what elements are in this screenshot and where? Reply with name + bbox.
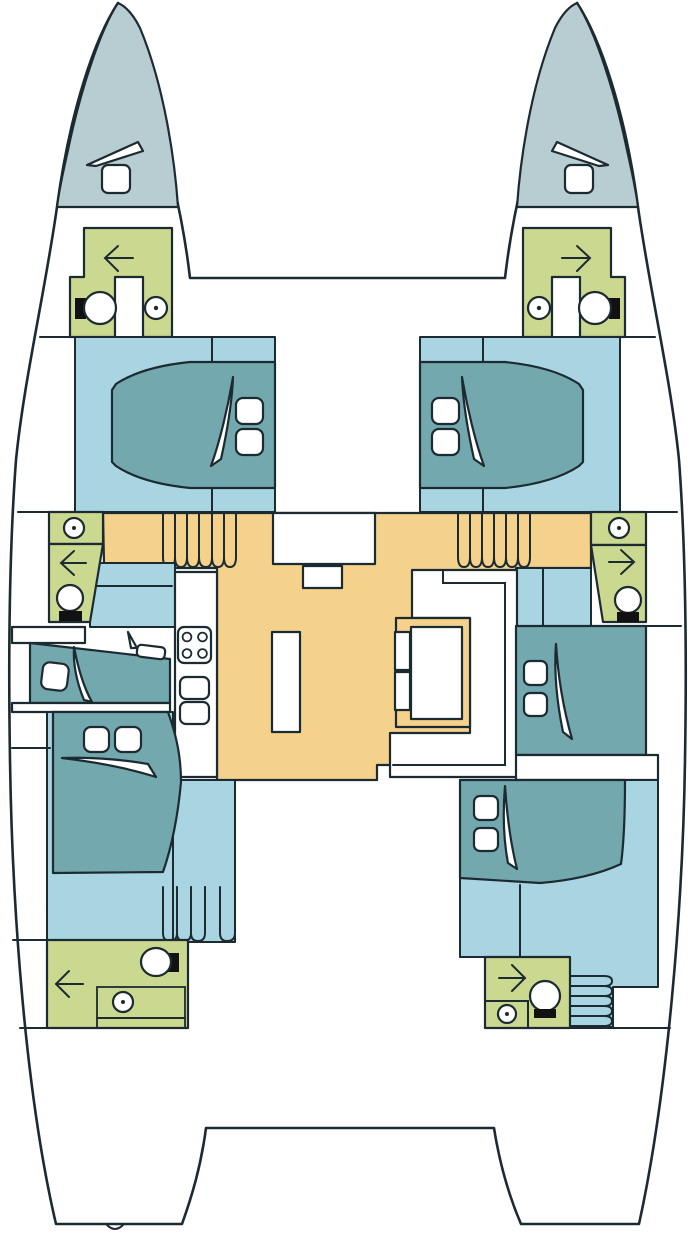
pillow-icon bbox=[236, 398, 263, 424]
dinette-table bbox=[411, 627, 462, 719]
pillow-icon bbox=[40, 662, 69, 692]
catamaran-floor-plan bbox=[0, 0, 695, 1239]
companionway-step bbox=[303, 566, 342, 588]
starboard-forward-sink-drain bbox=[537, 306, 541, 310]
pillow-icon bbox=[524, 661, 547, 685]
companionway-entry bbox=[273, 513, 375, 564]
port-bow-locker bbox=[57, 3, 178, 207]
dinette-seat-icon bbox=[395, 672, 410, 710]
shelf-icon bbox=[136, 644, 165, 659]
pillow-icon bbox=[524, 693, 547, 716]
port-aft-head bbox=[47, 940, 188, 1028]
pillow-icon bbox=[474, 796, 498, 820]
port-mid-bulkhead-band bbox=[12, 627, 85, 643]
port-forward-cabin bbox=[75, 337, 275, 512]
starboard-aft-bulkhead-band bbox=[516, 755, 658, 780]
starboard-bow-locker bbox=[517, 3, 638, 207]
galley-sink-icon bbox=[180, 702, 209, 724]
port-aft-sink-drain bbox=[121, 1000, 125, 1004]
pillow-icon bbox=[84, 727, 109, 752]
port-entry-floor bbox=[90, 563, 175, 627]
starboard-aft-shower-base bbox=[534, 1009, 556, 1018]
port-bow-hatch-icon bbox=[102, 165, 130, 193]
starboard-shower-icon bbox=[615, 587, 641, 613]
galley-sink-icon bbox=[180, 677, 209, 699]
starboard-shower-base bbox=[617, 612, 639, 622]
starboard-forward-toilet-icon bbox=[579, 292, 611, 324]
salon-table bbox=[272, 632, 300, 732]
starboard-aft-sink-drain bbox=[505, 1012, 509, 1016]
dinette-seat-icon bbox=[395, 632, 410, 670]
galley-counter bbox=[175, 572, 217, 777]
pillow-icon bbox=[115, 727, 141, 752]
stern-tick bbox=[107, 1225, 123, 1229]
stove-icon bbox=[178, 627, 211, 663]
starboard-entry-floor bbox=[516, 568, 591, 626]
pillow-icon bbox=[474, 828, 498, 851]
starboard-vanity-sink-drain bbox=[617, 526, 621, 530]
pillow-icon bbox=[236, 429, 263, 455]
galley bbox=[175, 572, 217, 777]
starboard-aft-head bbox=[485, 957, 570, 1028]
port-shower-base bbox=[59, 611, 82, 621]
starboard-bow-hatch-icon bbox=[565, 165, 593, 193]
starboard-aft-shower-icon bbox=[530, 981, 560, 1011]
pillow-icon bbox=[432, 429, 459, 455]
starboard-mid-bed-icon bbox=[516, 626, 646, 755]
starboard-forward-cabin bbox=[420, 337, 620, 512]
port-forward-toilet-icon bbox=[84, 292, 116, 324]
port-shower-icon bbox=[57, 585, 83, 611]
pillow-icon bbox=[432, 398, 459, 424]
port-vanity-sink-drain bbox=[72, 526, 76, 530]
port-aft-toilet-icon bbox=[141, 948, 171, 976]
port-forward-sink-drain bbox=[154, 306, 158, 310]
port-aft-bulkhead-band bbox=[12, 703, 170, 712]
